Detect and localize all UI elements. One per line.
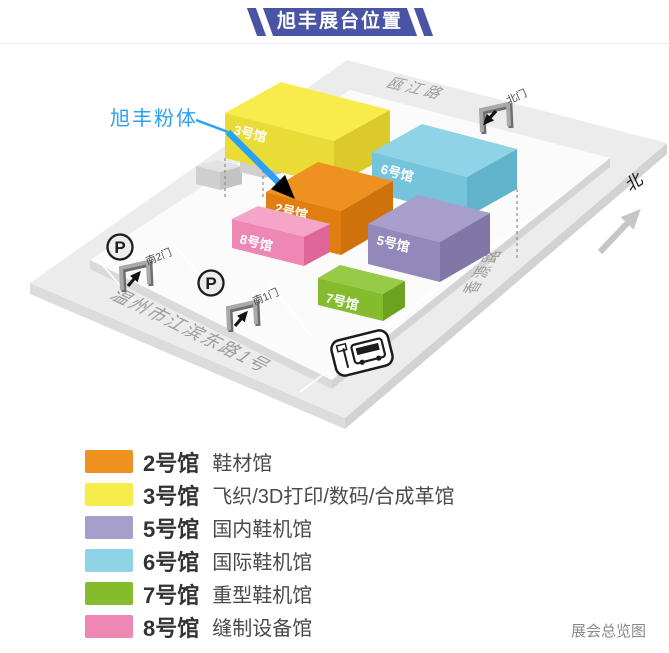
overview-caption: 展会总览图 <box>571 620 646 641</box>
legend-row: 5号馆 国内鞋机馆 <box>0 516 669 539</box>
hall-legend: 2号馆 鞋材馆 3号馆 飞织/3D打印/数码/合成革馆 5号馆 国内鞋机馆 6号… <box>0 450 669 648</box>
gate-north-label: 北门 <box>504 87 528 107</box>
legend-row: 3号馆 飞织/3D打印/数码/合成革馆 <box>0 483 669 506</box>
parking-icon: P <box>108 235 133 260</box>
legend-swatch-hall-5 <box>85 516 133 539</box>
legend-hall-desc: 鞋材馆 <box>212 447 272 476</box>
legend-hall-label: 6号馆 <box>143 545 199 577</box>
legend-hall-desc: 缝制设备馆 <box>212 612 312 641</box>
booth-callout-label: 旭丰粉体 <box>110 107 198 130</box>
legend-hall-desc: 飞织/3D打印/数码/合成革馆 <box>212 480 454 509</box>
page-title: 旭丰展台位置 <box>268 8 412 36</box>
legend-row: 2号馆 鞋材馆 <box>0 450 669 473</box>
parking-icon: P <box>199 271 224 296</box>
legend-hall-label: 5号馆 <box>143 512 199 544</box>
legend-hall-desc: 重型鞋机馆 <box>212 579 312 608</box>
legend-swatch-hall-8 <box>85 615 133 638</box>
legend-hall-desc: 国际鞋机馆 <box>212 546 312 575</box>
title-divider <box>0 43 669 44</box>
svg-text:P: P <box>114 238 125 257</box>
legend-hall-label: 2号馆 <box>143 446 199 478</box>
legend-hall-label: 3号馆 <box>143 479 199 511</box>
exhibition-location-page: 瓯江路 香源路 温州市江滨东路1号 北 P P <box>0 0 669 653</box>
legend-row: 8号馆 缝制设备馆 <box>0 615 669 638</box>
svg-text:P: P <box>205 274 216 293</box>
venue-map: 瓯江路 香源路 温州市江滨东路1号 北 P P <box>0 0 669 450</box>
legend-swatch-hall-3 <box>85 483 133 506</box>
legend-hall-label: 8号馆 <box>143 611 199 643</box>
legend-hall-label: 7号馆 <box>143 578 199 610</box>
legend-swatch-hall-6 <box>85 549 133 572</box>
legend-row: 7号馆 重型鞋机馆 <box>0 582 669 605</box>
legend-swatch-hall-7 <box>85 582 133 605</box>
legend-swatch-hall-2 <box>85 450 133 473</box>
legend-hall-desc: 国内鞋机馆 <box>212 513 312 542</box>
legend-row: 6号馆 国际鞋机馆 <box>0 549 669 572</box>
